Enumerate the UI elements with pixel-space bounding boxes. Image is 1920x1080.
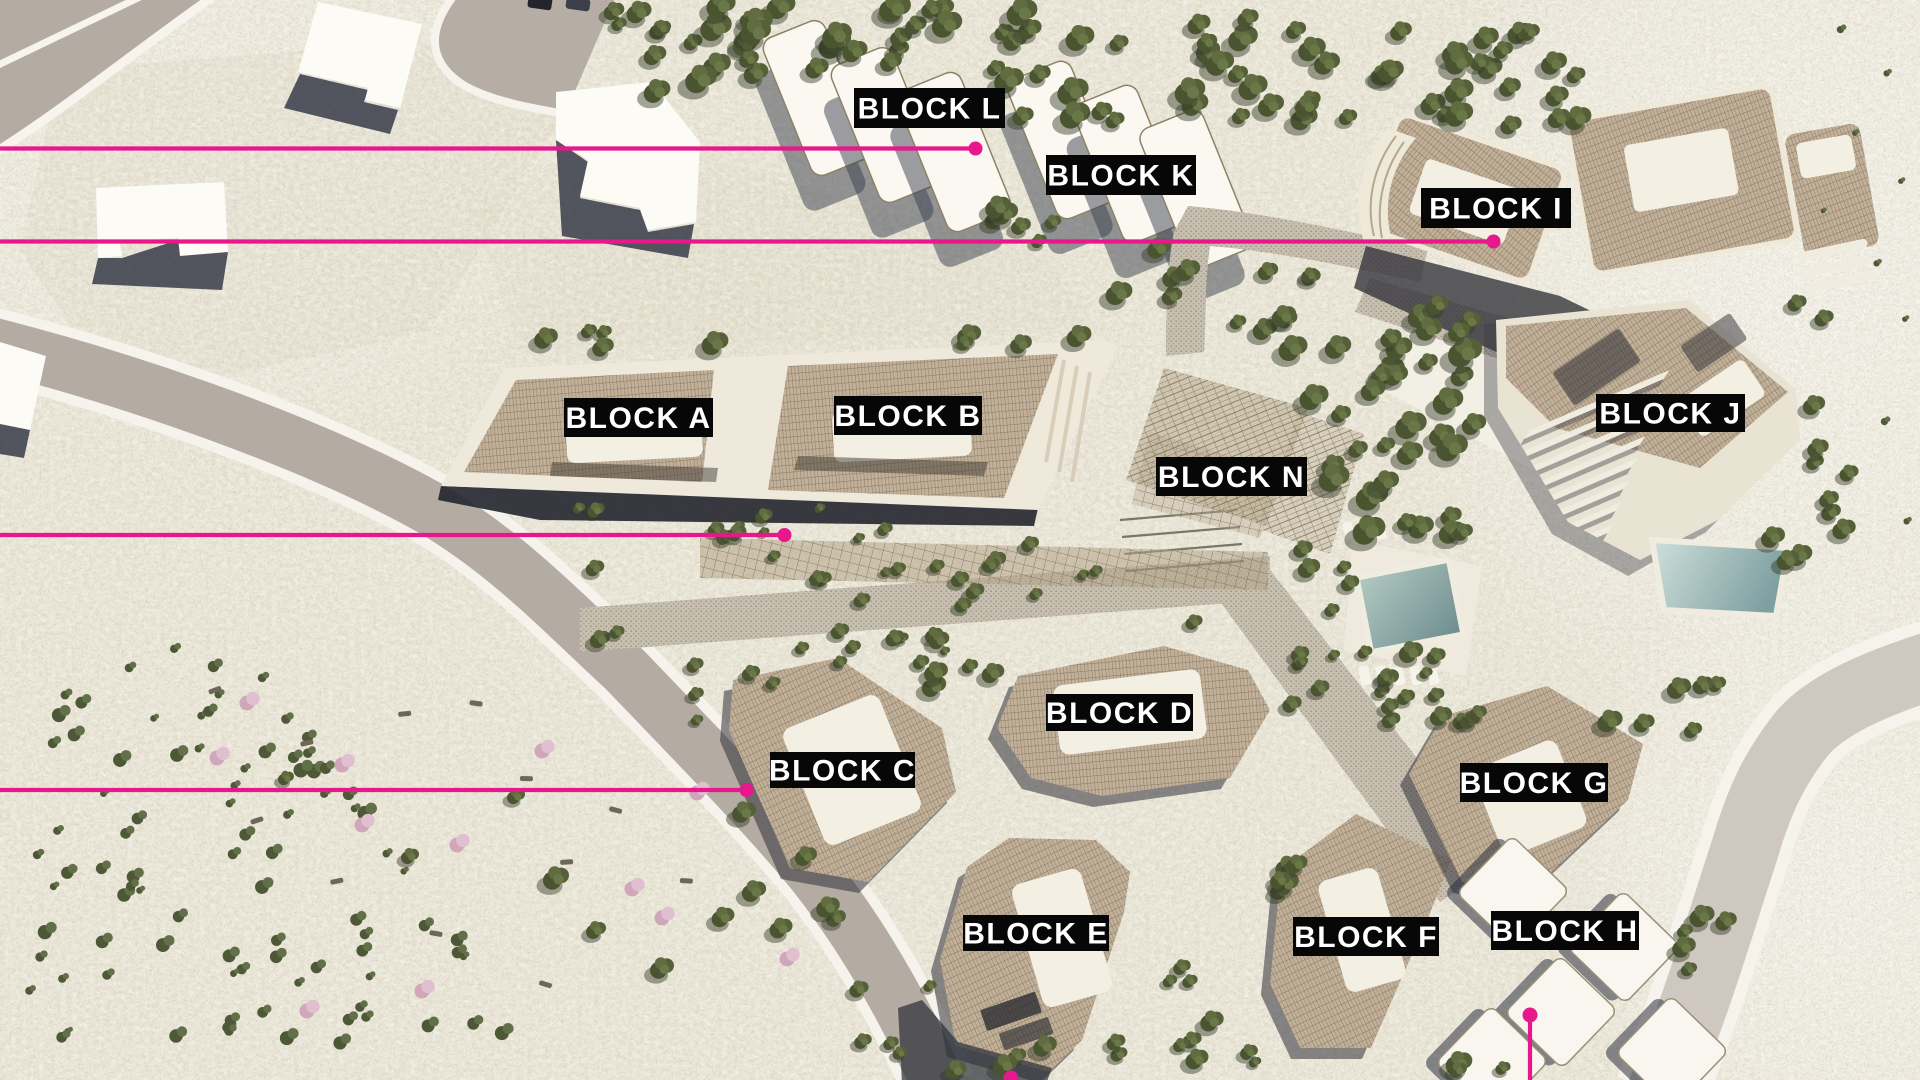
svg-text:BLOCK I: BLOCK I (1429, 193, 1563, 226)
svg-text:BLOCK G: BLOCK G (1460, 767, 1609, 800)
svg-text:BLOCK N: BLOCK N (1158, 461, 1305, 494)
svg-text:BLOCK K: BLOCK K (1047, 160, 1194, 193)
svg-text:BLOCK D: BLOCK D (1046, 697, 1193, 730)
svg-text:BLOCK L: BLOCK L (858, 93, 1002, 126)
svg-text:BLOCK J: BLOCK J (1599, 398, 1741, 431)
svg-text:BLOCK B: BLOCK B (834, 400, 981, 433)
svg-text:BLOCK F: BLOCK F (1294, 921, 1438, 954)
svg-text:BLOCK C: BLOCK C (769, 755, 916, 788)
svg-text:BLOCK H: BLOCK H (1491, 915, 1638, 948)
svg-text:BLOCK A: BLOCK A (565, 402, 711, 435)
svg-text:BLOCK E: BLOCK E (963, 918, 1109, 951)
